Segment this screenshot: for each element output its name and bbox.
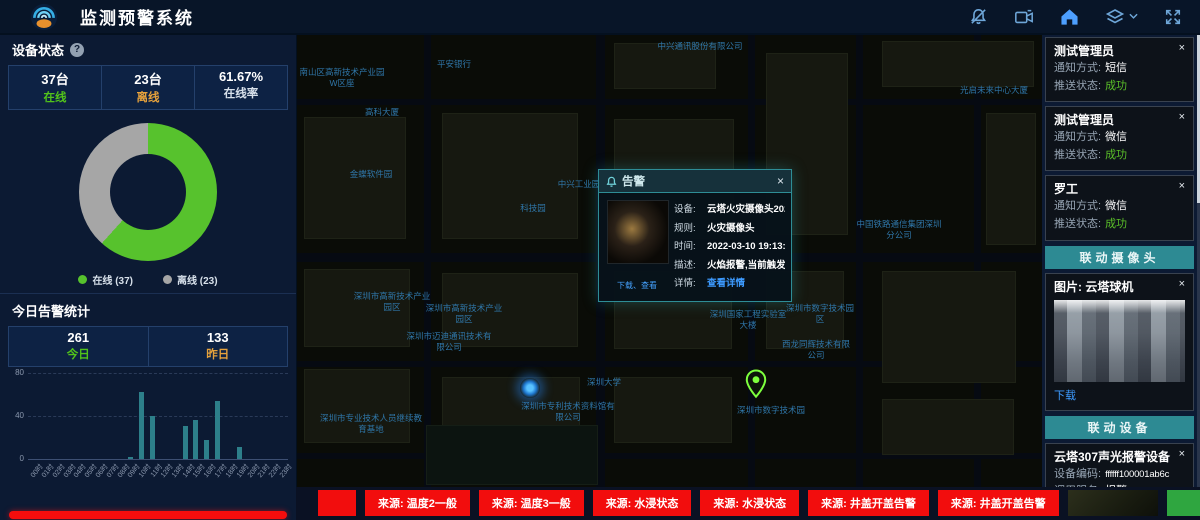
map-label: 深圳国家工程实验室大楼 (708, 309, 788, 330)
stat-label: 离线 (102, 89, 194, 105)
today-alarm-title: 今日告警统计 (12, 301, 90, 320)
map-label: 深圳市数字技术园 (716, 405, 826, 416)
notification-card: 测试管理员×通知方式:微信推送状态:成功 (1045, 106, 1194, 171)
map-label: 高科大厦 (352, 107, 412, 118)
card-row-value: 成功 (1105, 216, 1127, 234)
map-label: 科技园 (508, 203, 558, 214)
linked-camera-header: 联动摄像头 (1045, 246, 1194, 269)
card-row: 通知方式:短信 (1054, 60, 1185, 78)
popup-row-label: 详情: (674, 275, 707, 294)
legend-label: 离线 (23) (177, 272, 218, 287)
snapshot-links[interactable]: 下载、查看 (607, 280, 667, 291)
camera-card-title: 图片: 云塔球机 (1054, 278, 1175, 296)
x-tick: 17时 (212, 460, 223, 482)
stat-cell: 37台在线 (9, 66, 101, 109)
card-row-label: 推送状态: (1054, 216, 1101, 234)
stat-value: 261 (9, 330, 148, 345)
device-status-table: 37台在线23台离线61.67%在线率 (8, 65, 288, 110)
x-tick: 04时 (71, 460, 82, 482)
map-label: 深圳市高新技术产业园区 (352, 291, 432, 312)
notification-list: 测试管理员×通知方式:短信推送状态:成功测试管理员×通知方式:微信推送状态:成功… (1042, 37, 1200, 241)
alert-source-tile[interactable] (318, 490, 356, 516)
x-tick: 13时 (169, 460, 180, 482)
x-tick: 10时 (136, 460, 147, 482)
stat-value: 23台 (102, 69, 194, 88)
map[interactable]: 中兴通讯股份有限公司平安银行南山区高新技术产业园W区座光启未来中心大厦高科大厦金… (296, 33, 1042, 487)
x-tick: 14时 (180, 460, 191, 482)
card-row-value: 微信 (1105, 129, 1127, 147)
legend-dot-icon (163, 275, 172, 284)
close-icon[interactable]: × (1175, 111, 1185, 123)
legend-item: 在线 (37) (78, 272, 133, 287)
stat-cell: 61.67%在线率 (194, 66, 287, 109)
fire-snapshot-image[interactable] (607, 200, 669, 264)
y-axis: 04080 (8, 373, 28, 459)
popup-row: 设备:云塔火灾摄像头202 (674, 201, 785, 220)
x-tick: 20时 (245, 460, 256, 482)
bar-slot (201, 440, 212, 459)
bar-slot (136, 392, 147, 459)
popup-row-label: 规则: (674, 220, 707, 239)
download-link[interactable]: 下载 (1054, 390, 1076, 402)
notification-card: 测试管理员×通知方式:短信推送状态:成功 (1045, 37, 1194, 102)
app-title: 监测预警系统 (80, 4, 194, 29)
card-row-label: 设备编码: (1054, 466, 1101, 484)
card-row-value: ffffff100001ab6c (1105, 467, 1169, 482)
stat-label: 昨日 (149, 346, 288, 362)
x-tick: 18时 (223, 460, 234, 482)
map-label: 深圳市数字技术园区 (782, 303, 858, 324)
app-header: 监测预警系统 (0, 0, 1200, 35)
x-tick: 00时 (28, 460, 39, 482)
linked-device-list: 云塔307声光报警设备×设备编码:ffffff100001ab6c调用服务:报警… (1042, 443, 1200, 487)
bar (183, 426, 188, 459)
x-tick: 19时 (234, 460, 245, 482)
video-thumbnail-tile[interactable] (1068, 490, 1158, 516)
popup-close-icon[interactable]: × (777, 174, 784, 188)
stat-label: 今日 (9, 346, 148, 362)
popup-row-value: 火焰报警,当前触发值为... (707, 257, 785, 276)
x-tick: 16时 (201, 460, 212, 482)
linked-devices-header: 联动设备 (1045, 416, 1194, 439)
card-header: 罗工× (1054, 180, 1185, 198)
device-status-donut-chart (79, 123, 217, 261)
help-icon[interactable]: ? (70, 43, 84, 57)
donut-legend: 在线 (37)离线 (23) (0, 272, 296, 287)
card-row-label: 通知方式: (1054, 198, 1101, 216)
card-row: 设备编码:ffffff100001ab6c (1054, 466, 1185, 484)
bar-slot (147, 416, 158, 459)
map-label: 金蝶软件园 (336, 169, 406, 180)
stat-label: 在线率 (195, 85, 287, 101)
close-icon[interactable]: × (1175, 278, 1185, 290)
x-tick: 22时 (266, 460, 277, 482)
x-tick: 12时 (158, 460, 169, 482)
card-header: 云塔307声光报警设备× (1054, 448, 1185, 466)
stat-value: 61.67% (195, 69, 287, 84)
bar-slot (125, 457, 136, 459)
x-tick: 09时 (125, 460, 136, 482)
x-tick: 06时 (93, 460, 104, 482)
today-alarm-bar-chart: 04080 (8, 373, 288, 460)
popup-row: 详情:查看详情 (674, 275, 785, 294)
map-label: 深圳市高新技术产业园区 (424, 303, 504, 324)
stat-value: 133 (149, 330, 288, 345)
card-row-value: 成功 (1105, 78, 1127, 96)
x-tick: 08时 (115, 460, 126, 482)
popup-row-value: 2022-03-10 19:13:07 (707, 238, 785, 257)
card-row-value: 成功 (1105, 147, 1127, 165)
x-tick: 01时 (39, 460, 50, 482)
bell-off-icon[interactable] (969, 7, 988, 26)
card-row-value: 短信 (1105, 60, 1127, 78)
card-row: 推送状态:成功 (1054, 78, 1185, 96)
fullscreen-icon[interactable] (1164, 8, 1182, 26)
x-axis: 00时01时02时03时04时05时06时07时08时09时10时11时12时1… (28, 460, 288, 482)
right-sidebar: 测试管理员×通知方式:短信推送状态:成功测试管理员×通知方式:微信推送状态:成功… (1042, 33, 1200, 487)
alert-source-tile[interactable]: 来源: 温度3一般 (479, 490, 584, 516)
map-label: 中兴通讯股份有限公司 (652, 41, 748, 52)
bar (193, 420, 198, 459)
stat-cell: 261今日 (9, 327, 148, 366)
camera-card: 图片: 云塔球机 × 下载 (1045, 273, 1194, 411)
x-tick: 11时 (147, 460, 158, 482)
x-tick: 03时 (60, 460, 71, 482)
unhandled-progress-bar (9, 511, 287, 519)
camera-feed-tile[interactable] (1167, 490, 1200, 516)
device-status-title: 设备状态 (12, 40, 64, 59)
card-row: 通知方式:微信 (1054, 198, 1185, 216)
bar-slot (212, 401, 223, 459)
popup-row-value: 云塔火灾摄像头202 (707, 201, 785, 220)
left-panel: 设备状态 ? 37台在线23台离线61.67%在线率 在线 (37)离线 (23… (0, 33, 297, 520)
notification-card: 罗工×通知方式:微信推送状态:成功 (1045, 175, 1194, 240)
alert-source-tile[interactable]: 来源: 井盖开盖告警 (938, 490, 1059, 516)
bar (204, 440, 209, 459)
x-tick: 21时 (255, 460, 266, 482)
today-alarm-section-title: 今日告警统计 (0, 293, 296, 326)
alert-source-tile[interactable]: 来源: 水浸状态 (593, 490, 692, 516)
alert-source-tile[interactable]: 来源: 水浸状态 (700, 490, 799, 516)
bar-slot (190, 420, 201, 459)
card-title: 测试管理员 (1054, 42, 1175, 60)
card-row-label: 推送状态: (1054, 147, 1101, 165)
map-label: 深圳市专利技术资料馆有限公司 (520, 401, 616, 422)
popup-row-label: 设备: (674, 201, 707, 220)
today-alarm-table: 261今日133昨日 (8, 326, 288, 367)
card-title: 罗工 (1054, 180, 1175, 198)
snapshot-column: 下载、查看 (607, 200, 667, 294)
x-tick: 07时 (104, 460, 115, 482)
app-logo-icon (30, 3, 58, 31)
popup-row: 规则:火灾摄像头 (674, 220, 785, 239)
map-device-marker[interactable] (520, 378, 540, 398)
layers-icon[interactable] (1105, 8, 1138, 26)
map-label: 西龙同辉技术有限公司 (778, 339, 854, 360)
map-pin-icon[interactable] (744, 369, 768, 399)
x-tick: 23时 (277, 460, 288, 482)
popup-row-label: 描述: (674, 257, 707, 276)
card-header: 测试管理员× (1054, 42, 1185, 60)
card-title: 测试管理员 (1054, 111, 1175, 129)
alert-source-tile[interactable]: 来源: 温度2一般 (365, 490, 470, 516)
stat-cell: 133昨日 (148, 327, 288, 366)
card-row-value: 微信 (1105, 198, 1127, 216)
video-camera-icon[interactable] (1014, 8, 1034, 26)
close-icon[interactable]: × (1175, 448, 1185, 460)
popup-row: 描述:火焰报警,当前触发值为... (674, 257, 785, 276)
card-row: 通知方式:微信 (1054, 129, 1185, 147)
bar-slot (180, 426, 191, 459)
bar (128, 457, 133, 459)
legend-item: 离线 (23) (163, 272, 218, 287)
map-label: 深圳大学 (574, 377, 634, 388)
card-row: 推送状态:成功 (1054, 216, 1185, 234)
plot-area (28, 373, 288, 460)
x-tick: 05时 (82, 460, 93, 482)
bar (150, 416, 155, 459)
stat-cell: 23台离线 (101, 66, 194, 109)
card-header: 测试管理员× (1054, 111, 1185, 129)
card-row-label: 推送状态: (1054, 78, 1101, 96)
map-label: 深圳市专业技术人员继续教育基地 (316, 413, 426, 434)
alarm-icon (606, 176, 617, 187)
detail-link[interactable]: 查看详情 (707, 275, 785, 294)
bar (237, 447, 242, 459)
card-title: 云塔307声光报警设备 (1054, 448, 1175, 466)
bottom-alert-strip: 来源: 温度2一般来源: 温度3一般来源: 水浸状态来源: 水浸状态来源: 井盖… (296, 487, 1200, 520)
x-tick: 02时 (50, 460, 61, 482)
home-icon[interactable] (1060, 8, 1079, 26)
linked-device-card: 云塔307声光报警设备×设备编码:ffffff100001ab6c调用服务:报警… (1045, 443, 1194, 487)
close-icon[interactable]: × (1175, 180, 1185, 192)
alert-detail-rows: 设备:云塔火灾摄像头202规则:火灾摄像头时间:2022-03-10 19:13… (674, 200, 785, 294)
alert-popup: 告警 × 下载、查看 设备:云塔火灾摄像头202规则:火灾摄像头时间:2022-… (598, 169, 792, 302)
close-icon[interactable]: × (1175, 42, 1185, 54)
legend-label: 在线 (37) (92, 272, 133, 287)
card-row-label: 通知方式: (1054, 60, 1101, 78)
alert-source-tile[interactable]: 来源: 井盖开盖告警 (808, 490, 929, 516)
popup-title: 告警 (622, 173, 645, 189)
bar (139, 392, 144, 459)
map-label: 平安银行 (424, 59, 484, 70)
popup-row-label: 时间: (674, 238, 707, 257)
header-toolbar (969, 7, 1182, 26)
map-label: 中国铁路通信集团深圳分公司 (856, 219, 942, 240)
card-row-label: 通知方式: (1054, 129, 1101, 147)
legend-dot-icon (78, 275, 87, 284)
x-tick: 15时 (190, 460, 201, 482)
camera-snapshot-image[interactable] (1054, 300, 1185, 382)
map-label: 南山区高新技术产业园W区座 (298, 67, 386, 88)
bar (215, 401, 220, 459)
alert-popup-header: 告警 × (599, 170, 791, 193)
device-status-section-title: 设备状态 ? (0, 33, 296, 65)
alert-popup-body: 下载、查看 设备:云塔火灾摄像头202规则:火灾摄像头时间:2022-03-10… (599, 193, 791, 301)
stat-label: 在线 (9, 89, 101, 105)
device-status-chart-area (0, 123, 296, 261)
stat-value: 37台 (9, 69, 101, 88)
popup-row-value: 火灾摄像头 (707, 220, 785, 239)
map-label: 深圳市迈迪通讯技术有限公司 (404, 331, 494, 352)
popup-row: 时间:2022-03-10 19:13:07 (674, 238, 785, 257)
card-row: 推送状态:成功 (1054, 147, 1185, 165)
map-label: 光启未来中心大厦 (946, 85, 1042, 96)
bar-slot (234, 447, 245, 459)
